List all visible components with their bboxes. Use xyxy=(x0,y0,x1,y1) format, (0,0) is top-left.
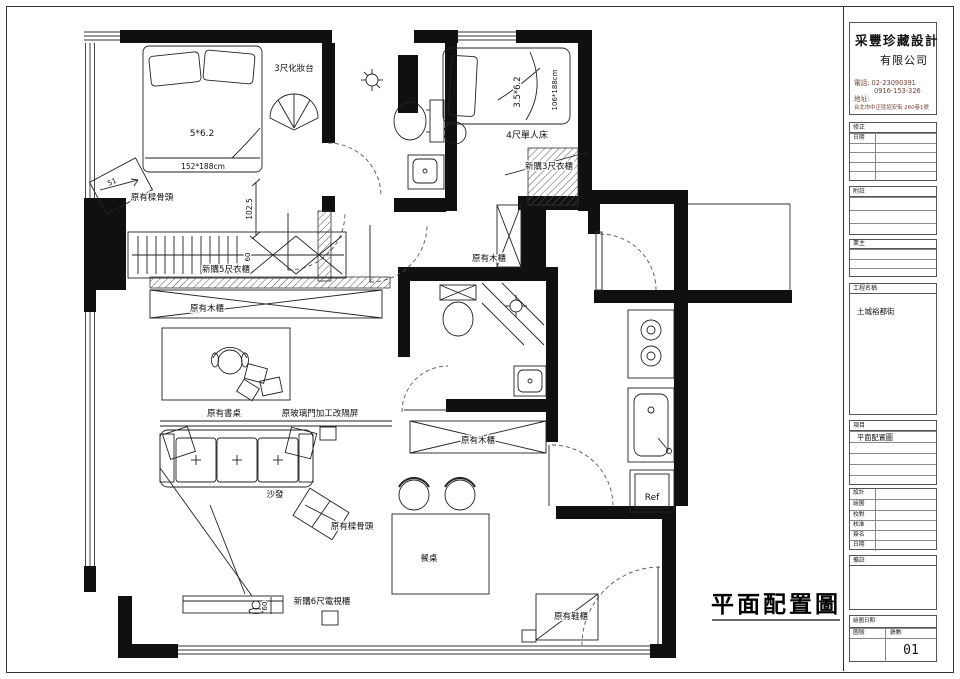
kitchen-fixtures xyxy=(628,310,674,512)
bed1-size-label: 5*6.2 xyxy=(190,129,215,139)
plan-labels: 5*6.2 152*188cm 3尺化妝台 51 原有樑骨頭 102.5 新購5… xyxy=(106,63,841,622)
bed1-dim-label: 152*188cm xyxy=(181,162,225,171)
door-swings xyxy=(288,143,660,645)
wood-cabinet1-label: 原有木櫃 xyxy=(190,303,225,314)
phone-2: 0916-153-326 xyxy=(874,87,921,95)
address: 台北市中正區詔安街 260巷1號 xyxy=(854,104,936,112)
item-value: 平面配置圖 xyxy=(850,431,936,442)
remarks-box: 備註 xyxy=(849,555,937,610)
dim-60-tv: 60 xyxy=(261,602,269,611)
address-label: 地址: xyxy=(854,95,869,103)
wood-cabinet2-label: 原有木櫃 xyxy=(472,253,507,264)
company-contact: 電話: 02-23090391 0916-153-326 地址: 台北市中正區詔… xyxy=(850,79,936,112)
bed2-dim-label: 106*188cm xyxy=(551,69,559,110)
sofa-label: 沙發 xyxy=(266,490,284,500)
company-box: 采豐珍藏設計 有限公司 電話: 02-23090391 0916-153-326… xyxy=(849,22,937,115)
project-name: 土城裕都街 xyxy=(850,294,936,317)
bed2-size-label: 3.5*6.2 xyxy=(513,76,523,107)
project-box: 工程名稱 土城裕都街 xyxy=(849,283,937,415)
notes-label: 附註 xyxy=(850,187,936,197)
partition-label: 原玻璃門加工改隔屏 xyxy=(282,408,359,419)
wardrobe3-label: 新購3尺衣櫃 xyxy=(525,161,573,172)
company-suffix: 有限公司 xyxy=(850,52,928,68)
sign-row-draw: 繪圖 xyxy=(850,500,876,509)
beam-marker-2 xyxy=(293,488,349,540)
bathroom2-fixtures xyxy=(440,283,546,396)
floor-plan-page: 5*6.2 152*188cm 3尺化妝台 51 原有樑骨頭 102.5 新購5… xyxy=(0,0,960,679)
date-label: 日期 xyxy=(850,134,876,143)
bed-double xyxy=(143,46,262,172)
revision-box: 修正 日期 xyxy=(849,122,937,181)
phone-1: 02-23090391 xyxy=(872,79,916,87)
sheet-number: 01 xyxy=(886,639,936,662)
sign-row-date: 日期 xyxy=(850,541,876,550)
sign-row-proof: 校對 xyxy=(850,511,876,520)
wood-cabinet-1 xyxy=(150,290,382,318)
tv-cabinet-label: 新購6尺電視櫃 xyxy=(294,596,351,607)
sign-row-signature: 簽名 xyxy=(850,531,876,540)
single-bed-label: 4尺單人床 xyxy=(506,129,548,141)
walls xyxy=(84,30,792,658)
dim-102-5-label: 102.5 xyxy=(245,198,254,220)
desk xyxy=(162,328,290,401)
sheet-no-label: 圖號 xyxy=(850,629,886,638)
sofa xyxy=(160,427,317,487)
dresser-chair xyxy=(270,94,318,130)
remarks-label: 備註 xyxy=(850,556,936,566)
title-block-separator xyxy=(843,6,844,671)
desk-label: 原有書桌 xyxy=(207,408,242,419)
wardrobe5-label: 新購5尺衣櫃 xyxy=(202,264,250,275)
dining-set xyxy=(392,478,489,594)
sign-row-design: 設計 xyxy=(850,489,876,499)
notes-box: 附註 xyxy=(849,186,937,235)
sign-table: 設計 繪圖 校對 核准 簽名 日期 xyxy=(849,488,937,550)
phone-label: 電話: xyxy=(854,79,869,87)
wood-cabinet3-label: 原有木櫃 xyxy=(461,435,496,446)
floor-plan-drawing: 5*6.2 152*188cm 3尺化妝台 51 原有樑骨頭 102.5 新購5… xyxy=(0,0,846,679)
revision-label: 修正 xyxy=(850,123,936,133)
dresser-label: 3尺化妝台 xyxy=(274,63,313,74)
beam1-label: 原有樑骨頭 xyxy=(131,192,174,203)
item-label: 項目 xyxy=(850,421,936,431)
shoe-cabinet-label: 原有鞋櫃 xyxy=(554,611,589,622)
client-box: 業主 xyxy=(849,239,937,277)
company-name: 采豐珍藏設計 xyxy=(855,30,934,49)
project-label: 工程名稱 xyxy=(850,284,936,294)
fridge-label: Ref xyxy=(645,493,660,503)
client-label: 業主 xyxy=(850,240,936,249)
sign-row-approve: 核准 xyxy=(850,521,876,530)
dim-60-wardrobe: 60 xyxy=(244,253,252,262)
draw-date-label: 繪圖日期 xyxy=(850,616,936,628)
beam2-label: 原有樑骨頭 xyxy=(331,521,374,532)
sheet-count-label: 張數 xyxy=(886,629,936,638)
sheet-box: 繪圖日期 圖號 張數 01 xyxy=(849,615,937,662)
drawing-title: 平面配置圖 xyxy=(711,592,841,618)
item-box: 項目 平面配置圖 xyxy=(849,420,937,485)
dining-label: 餐桌 xyxy=(420,553,438,564)
sight-line-2 xyxy=(210,505,245,594)
glass-partition xyxy=(160,421,392,440)
